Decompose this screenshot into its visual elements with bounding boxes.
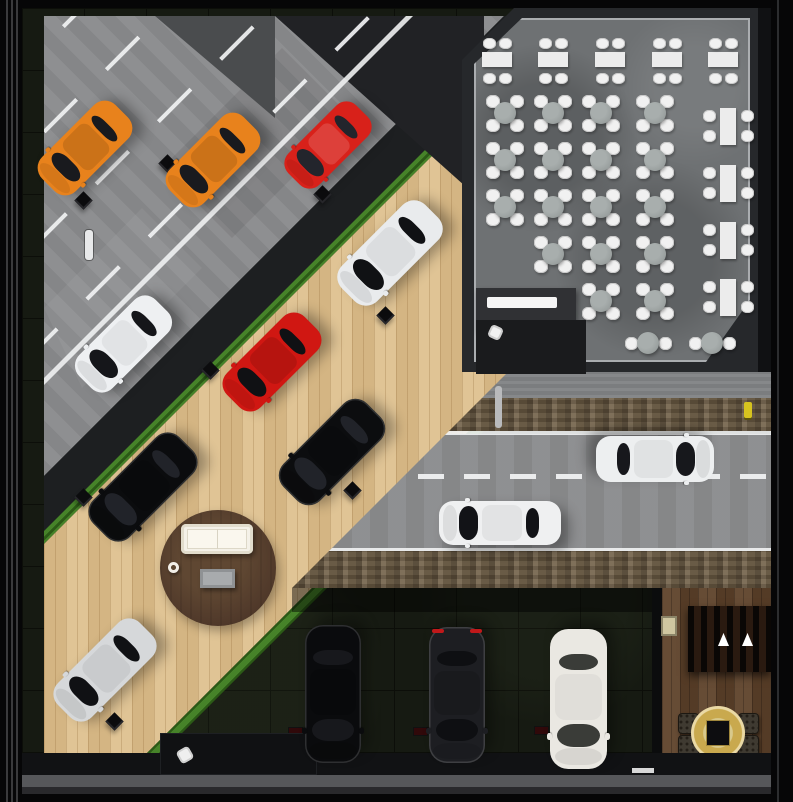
car-taillight-right <box>432 629 444 633</box>
bottom-step-band-0 <box>22 753 771 775</box>
car-rear-window <box>437 652 476 667</box>
car-mirror-right <box>173 159 179 165</box>
chair <box>659 337 672 350</box>
chair <box>703 130 716 142</box>
car-roof <box>555 674 602 720</box>
car-black-sedan-garage <box>305 625 361 763</box>
highway-dirt-bottom <box>280 551 771 588</box>
showroom-coffee-table <box>200 569 235 588</box>
restaurant-round-table-0 <box>494 102 516 124</box>
restaurant-round-table-4 <box>494 149 516 171</box>
car-hood-shade <box>434 743 481 759</box>
car-mirror-left <box>605 733 610 739</box>
chair <box>725 38 738 49</box>
chair <box>709 38 722 49</box>
car-windshield <box>436 720 479 742</box>
architectural-top-view-render <box>0 0 793 802</box>
car-windshield <box>556 724 599 746</box>
car-mirror-right <box>346 254 353 261</box>
restaurant-round-table-11 <box>644 196 666 218</box>
restaurant-table-top-0 <box>482 52 512 67</box>
car-hood-shade <box>310 742 357 759</box>
car-hood-shade <box>443 505 458 542</box>
car-mirror-right <box>45 147 51 153</box>
chair <box>499 73 512 84</box>
reception-counter-top <box>487 297 557 308</box>
car-mirror-right <box>465 498 470 502</box>
chair <box>741 167 754 179</box>
car-windshield <box>676 442 695 477</box>
restaurant-table-side-1 <box>720 165 736 202</box>
car-gray-sedan-garage <box>429 627 485 763</box>
frame-right-line <box>777 0 779 802</box>
chair <box>625 337 638 350</box>
car-mirror-left <box>465 544 470 548</box>
chair <box>612 38 625 49</box>
frame-left-line-1 <box>11 0 13 802</box>
restaurant-round-table-9 <box>542 196 564 218</box>
chair <box>703 301 716 313</box>
chair <box>499 38 512 49</box>
car-mirror-right <box>62 671 69 678</box>
chair <box>653 73 666 84</box>
car-rear-window <box>526 508 539 539</box>
car-roof <box>310 669 356 715</box>
chair <box>741 110 754 122</box>
restaurant-table-top-3 <box>652 52 682 67</box>
car-windshield <box>312 719 355 741</box>
chair <box>703 224 716 236</box>
chair <box>483 38 496 49</box>
car-mirror-right <box>97 488 104 495</box>
car-taillight-left <box>470 629 482 633</box>
car-white-suv-highway <box>596 436 714 482</box>
kerb-door-marker <box>85 230 93 260</box>
showroom-sofa <box>181 524 253 554</box>
frame-left-line-0 <box>6 0 8 802</box>
garage-entrance-shadow <box>292 588 662 612</box>
chair <box>725 73 738 84</box>
car-rear-window <box>313 650 352 665</box>
chair <box>741 130 754 142</box>
chair <box>703 167 716 179</box>
car-mirror-right <box>684 481 689 485</box>
chair <box>555 38 568 49</box>
chair <box>596 73 609 84</box>
restaurant-round-table-bottom-0 <box>637 332 659 354</box>
restaurant-table-top-4 <box>708 52 738 67</box>
car-rear-window <box>617 443 630 475</box>
fire-hydrant-marker <box>744 402 752 418</box>
frame-top <box>0 0 793 8</box>
chair <box>741 187 754 199</box>
restaurant-round-table-3 <box>644 102 666 124</box>
restaurant-table-top-2 <box>595 52 625 67</box>
restaurant-round-table-15 <box>590 290 612 312</box>
chair <box>669 38 682 49</box>
restaurant-round-table-8 <box>494 196 516 218</box>
chair <box>539 38 552 49</box>
car-rear-window <box>558 654 598 669</box>
restaurant-round-table-2 <box>590 102 612 124</box>
restaurant-round-table-12 <box>542 243 564 265</box>
lounge-wall-panel <box>661 616 677 636</box>
lounge-center-table <box>706 720 730 746</box>
chair <box>741 244 754 256</box>
lounge-slatted-feature <box>688 606 771 672</box>
restaurant-round-table-14 <box>644 243 666 265</box>
chair <box>669 73 682 84</box>
chair <box>703 187 716 199</box>
frame-right <box>771 0 793 802</box>
chair <box>741 301 754 313</box>
chair <box>703 244 716 256</box>
car-roof <box>634 440 673 478</box>
car-mirror-right <box>426 728 431 734</box>
car-mirror-right <box>546 733 551 739</box>
restaurant-round-table-16 <box>644 290 666 312</box>
restaurant-round-table-10 <box>590 196 612 218</box>
sidewalk-pole <box>495 386 502 428</box>
chair <box>741 224 754 236</box>
car-hood-shade <box>554 748 602 765</box>
frame-left-line-2 <box>16 0 18 802</box>
chair <box>612 73 625 84</box>
chair <box>741 281 754 293</box>
restaurant-outer-right-wall <box>758 8 771 372</box>
showroom-side-tray <box>168 562 179 573</box>
garage-white-strip <box>632 768 654 773</box>
restaurant-table-side-0 <box>720 108 736 145</box>
car-white-sedan-highway <box>439 501 561 545</box>
chair <box>539 73 552 84</box>
chair <box>653 38 666 49</box>
restaurant-round-table-bottom-1 <box>701 332 723 354</box>
chair <box>703 281 716 293</box>
car-hood-shade <box>696 440 710 479</box>
car-roof <box>482 505 522 541</box>
car-mirror-left <box>684 433 689 437</box>
frame-bottom <box>0 794 793 802</box>
restaurant-round-table-7 <box>644 149 666 171</box>
car-mirror-right <box>230 362 237 369</box>
bottom-step-band-1 <box>22 775 771 787</box>
car-mirror-right <box>302 728 307 734</box>
car-roof <box>434 671 480 716</box>
chair <box>703 110 716 122</box>
bottom-step-band-2 <box>22 787 771 794</box>
restaurant-table-top-1 <box>538 52 568 67</box>
restaurant-table-side-3 <box>720 279 736 316</box>
car-white-van-garage <box>550 629 607 769</box>
car-mirror-right <box>287 452 294 459</box>
restaurant-round-table-13 <box>590 243 612 265</box>
chair <box>596 38 609 49</box>
restaurant-table-side-2 <box>720 222 736 259</box>
sofa-cushion-divider <box>217 529 218 549</box>
restaurant-round-table-5 <box>542 149 564 171</box>
car-mirror-right <box>291 144 297 150</box>
chair <box>709 73 722 84</box>
chair <box>483 73 496 84</box>
restaurant-round-table-1 <box>542 102 564 124</box>
chair <box>555 73 568 84</box>
restaurant-round-table-6 <box>590 149 612 171</box>
chair <box>689 337 702 350</box>
car-windshield <box>459 506 479 539</box>
chair <box>723 337 736 350</box>
